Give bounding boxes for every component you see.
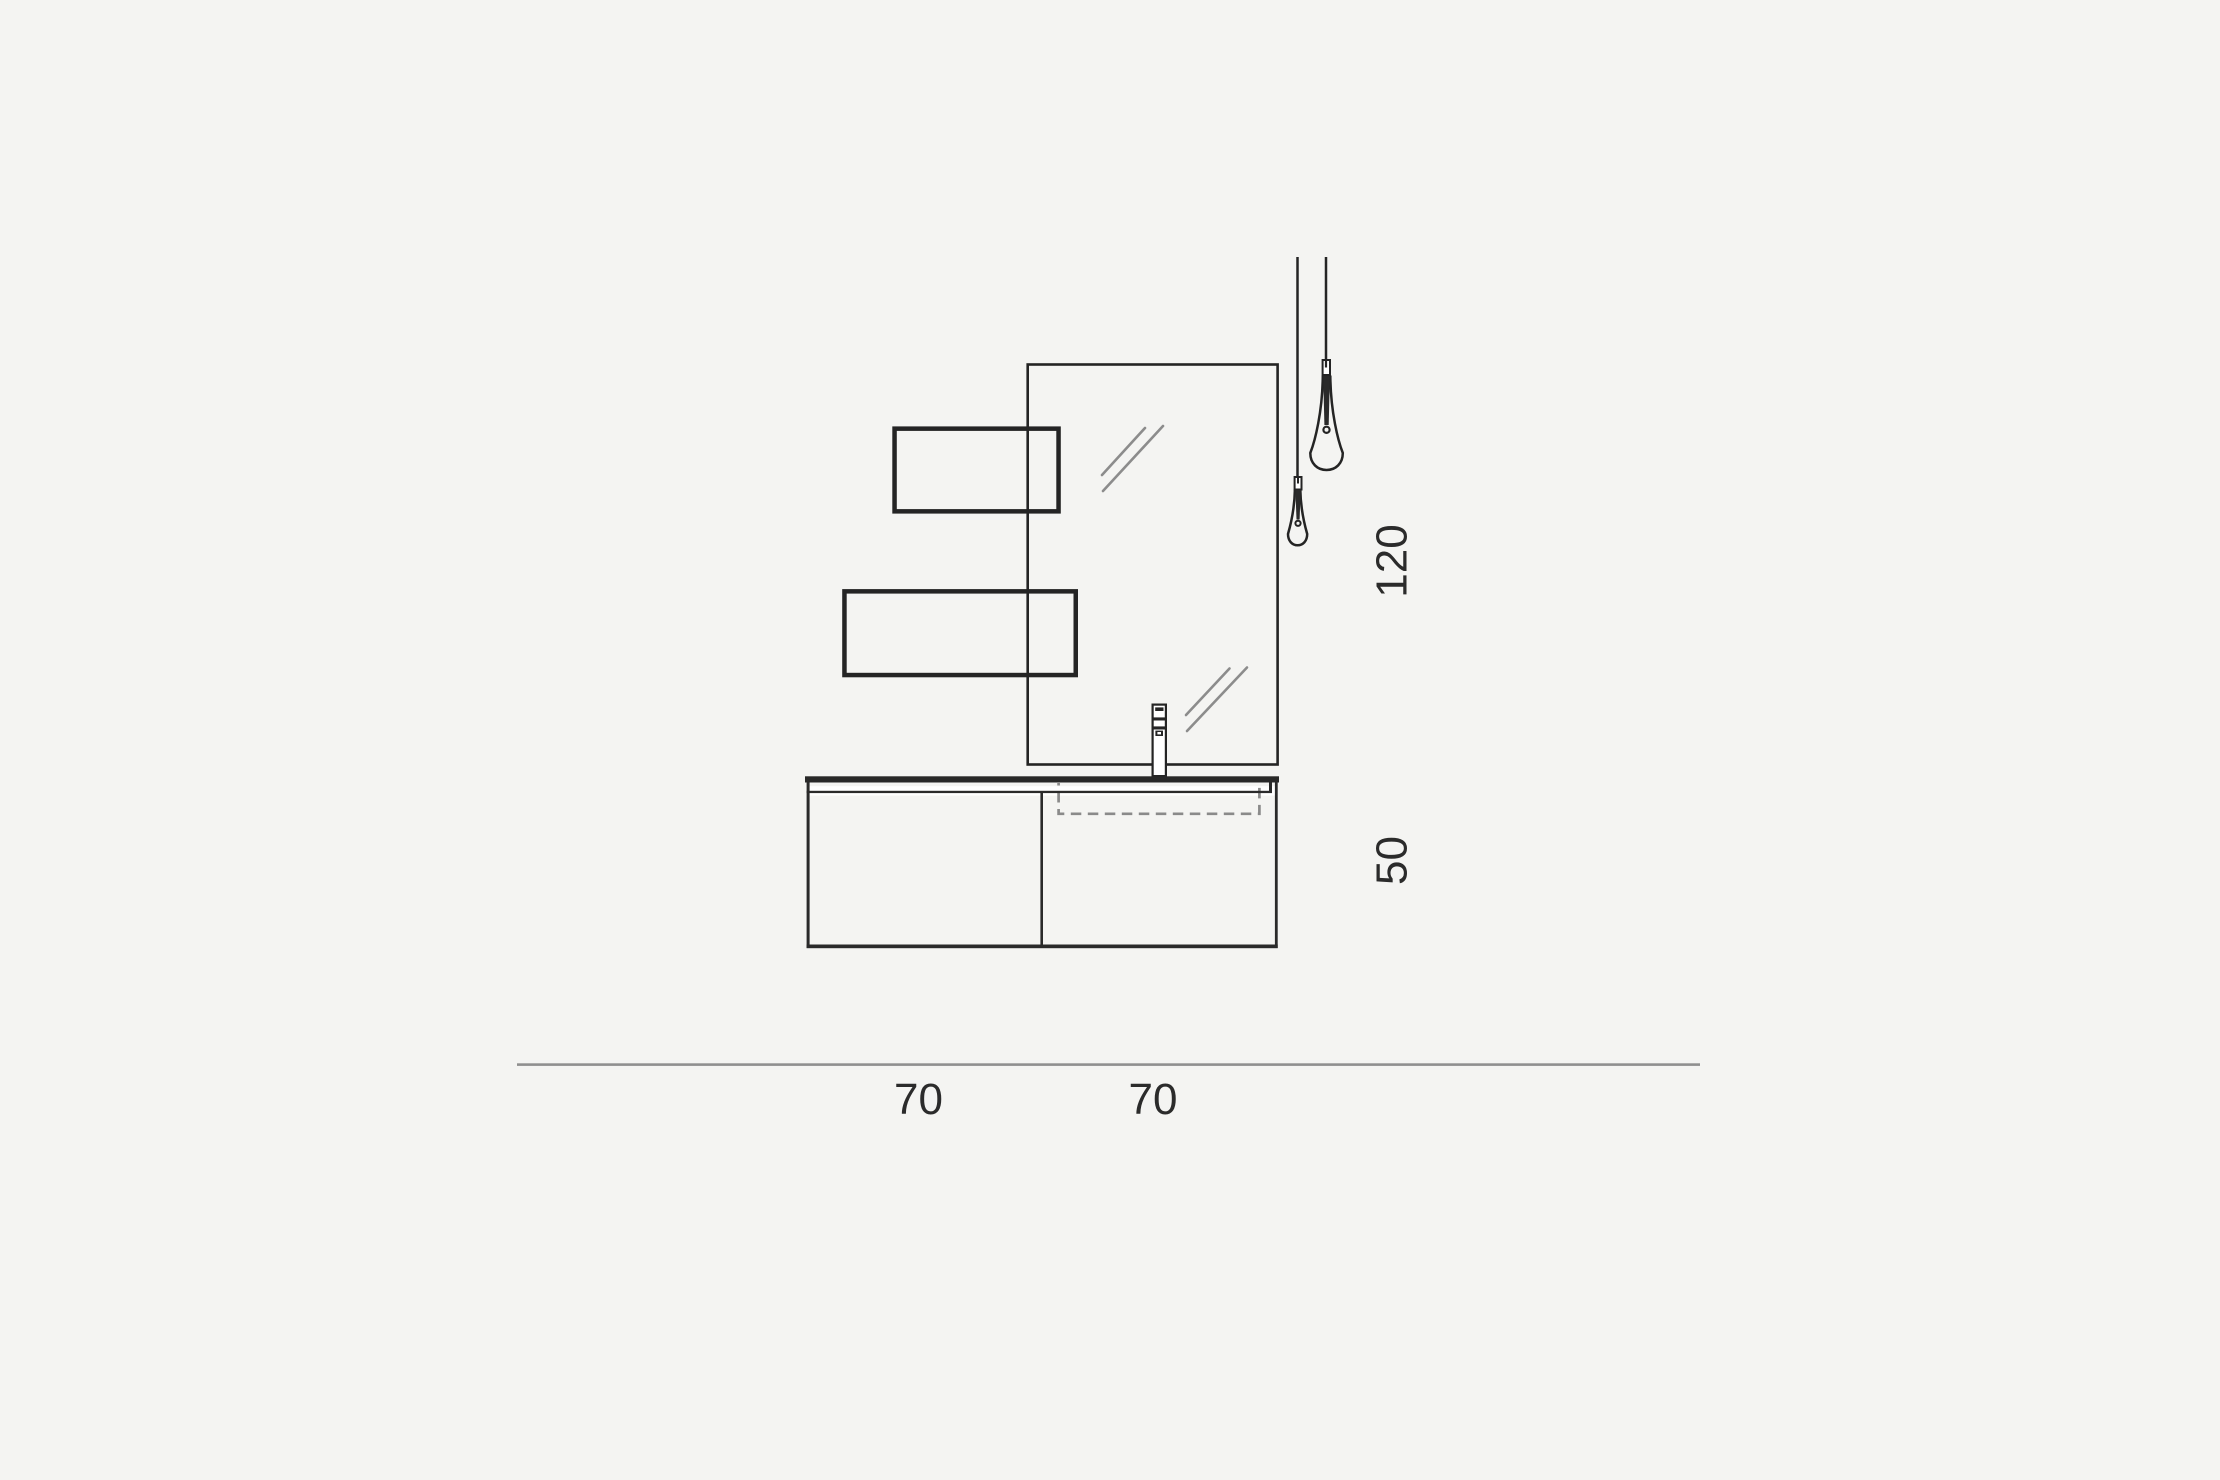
svg-text:50: 50 <box>1368 836 1417 885</box>
svg-text:70: 70 <box>1129 1075 1178 1124</box>
svg-text:120: 120 <box>1368 524 1417 597</box>
svg-text:70: 70 <box>894 1075 943 1124</box>
